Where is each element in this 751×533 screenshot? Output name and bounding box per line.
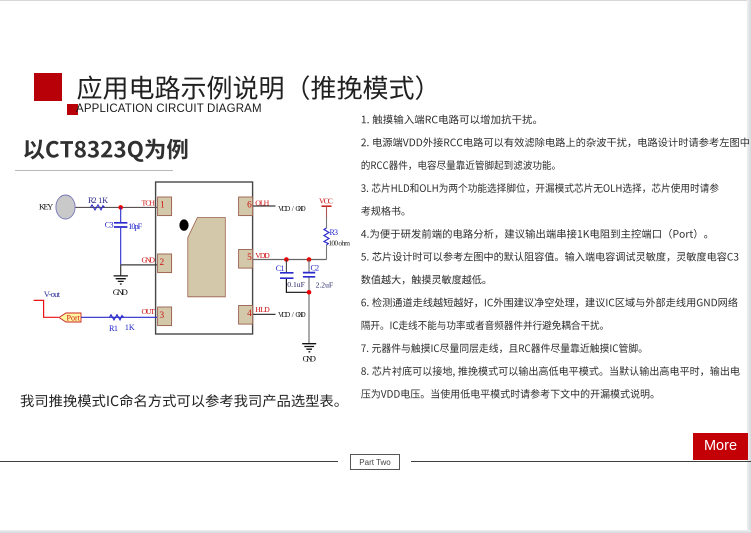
svg-text:GND: GND [295,310,306,319]
svg-text:3: 3 [160,311,165,321]
svg-text:R3: R3 [330,228,339,237]
svg-text:2: 2 [160,258,165,268]
svg-text:OUT: OUT [142,307,156,316]
svg-text:C2: C2 [311,264,320,273]
svg-text:5: 5 [247,253,252,263]
svg-text:C3: C3 [105,220,114,229]
svg-text:KEY: KEY [39,203,53,212]
svg-text:0.1uF: 0.1uF [287,280,305,289]
svg-text:/: / [292,310,295,319]
svg-text:GND: GND [295,204,306,213]
svg-text:100 ohm: 100 ohm [329,238,351,247]
svg-text:GND: GND [113,287,128,297]
svg-text:1K: 1K [125,323,135,332]
svg-text:OLH: OLH [255,199,269,208]
svg-text:1K: 1K [98,196,108,205]
svg-text:VCC: VCC [319,197,333,206]
svg-text:R2: R2 [88,195,97,205]
svg-text:Port: Port [67,314,81,323]
svg-text:R1: R1 [109,324,118,333]
svg-text:HLD: HLD [255,305,270,314]
svg-text:GND: GND [303,353,317,363]
svg-text:/: / [292,204,295,213]
svg-text:V-out: V-out [44,289,61,299]
svg-text:2.2uF: 2.2uF [316,281,334,290]
svg-text:6: 6 [247,201,252,211]
svg-text:1: 1 [160,201,165,211]
svg-text:C1: C1 [276,264,285,273]
svg-text:4: 4 [247,309,252,319]
svg-text:TCH: TCH [142,199,156,208]
svg-text:VDD: VDD [278,204,291,213]
svg-text:GND: GND [142,256,156,265]
svg-text:VDD: VDD [255,251,270,260]
svg-text:VDD: VDD [278,310,291,319]
svg-text:10pF: 10pF [128,222,142,231]
